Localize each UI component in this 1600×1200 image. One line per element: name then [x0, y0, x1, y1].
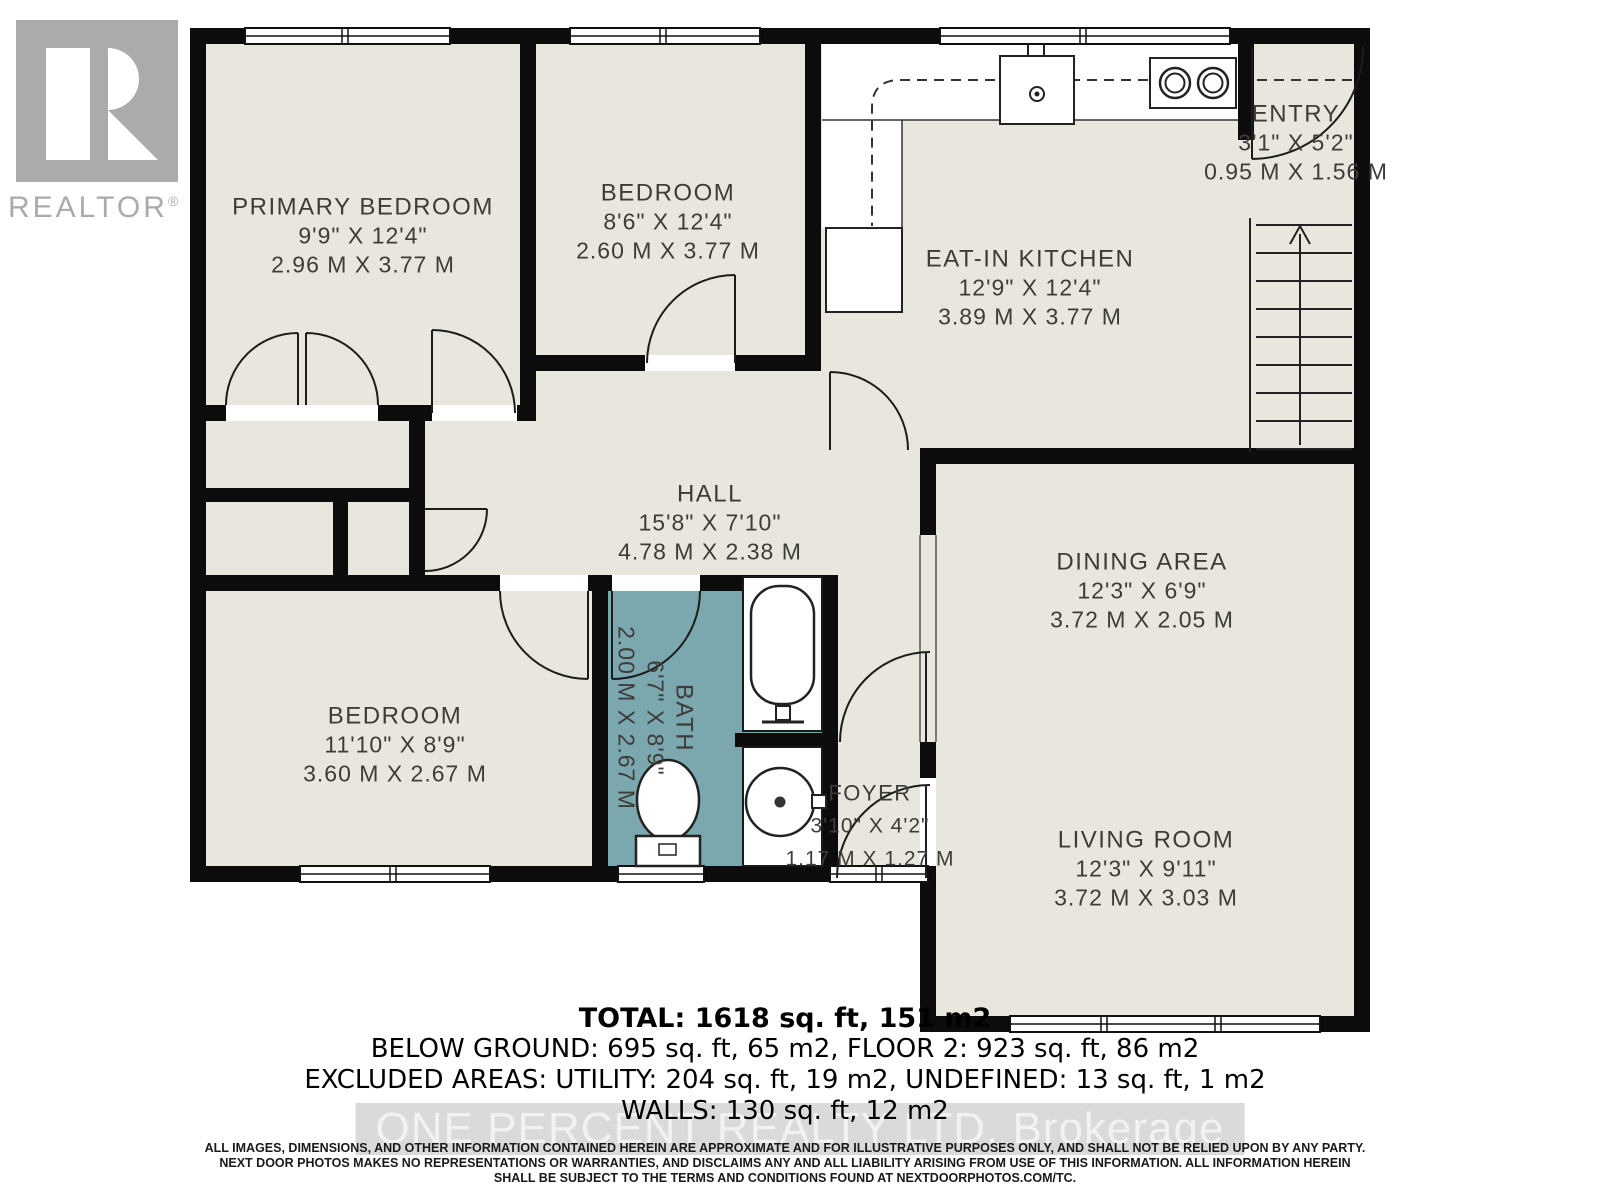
room-label-dining-area: DINING AREA 12'3" X 6'9" 3.72 M X 2.05 M — [1050, 548, 1234, 635]
disclaimer: ALL IMAGES, DIMENSIONS, AND OTHER INFORM… — [0, 1141, 1570, 1186]
room-dim-imperial: 12'9" X 12'4" — [926, 274, 1135, 303]
realtor-r-icon — [8, 10, 183, 182]
room-dim-metric: 4.78 M X 2.38 M — [618, 538, 802, 567]
room-name: DINING AREA — [1050, 548, 1234, 577]
area-summary: TOTAL: 1618 sq. ft, 151 m2 BELOW GROUND:… — [0, 1003, 1570, 1127]
room-name: ENTRY — [1204, 100, 1388, 129]
room-name: EAT-IN KITCHEN — [926, 245, 1135, 274]
window-bedroom-lower — [300, 866, 490, 882]
room-label-foyer: FOYER 3'10" X 4'2" 1.17 M X 1.27 M — [785, 777, 954, 876]
room-name: LIVING ROOM — [1054, 826, 1238, 855]
room-name: HALL — [618, 480, 802, 509]
window-kitchen — [940, 28, 1230, 44]
room-dim-imperial: 15'8" X 7'10" — [618, 509, 802, 538]
room-label-bedroom-lower: BEDROOM 11'10" X 8'9" 3.60 M X 2.67 M — [303, 702, 487, 789]
fridge — [826, 228, 902, 312]
room-dim-imperial: 3'10" X 4'2" — [785, 810, 954, 843]
disclaimer-line-1: ALL IMAGES, DIMENSIONS, AND OTHER INFORM… — [0, 1141, 1570, 1156]
floor-plan-page: { "logo": { "brand": "REALTOR", "registe… — [0, 0, 1600, 1200]
excluded-area-text: EXCLUDED AREAS: UTILITY: 204 sq. ft, 19 … — [0, 1065, 1570, 1096]
room-label-primary-bedroom: PRIMARY BEDROOM 9'9" X 12'4" 2.96 M X 3.… — [232, 193, 494, 280]
room-label-bath: BATH 6'7" X 8'9" 2.00 M X 2.67 M — [612, 626, 699, 810]
room-label-living-room: LIVING ROOM 12'3" X 9'11" 3.72 M X 3.03 … — [1054, 826, 1238, 913]
bath-sink-drain — [775, 797, 786, 808]
room-dim-metric: 3.72 M X 2.05 M — [1050, 606, 1234, 635]
room-name: BATH — [670, 626, 699, 810]
realtor-logo-text: REALTOR® — [8, 191, 178, 225]
room-label-eat-in-kitchen: EAT-IN KITCHEN 12'9" X 12'4" 3.89 M X 3.… — [926, 245, 1135, 332]
disclaimer-line-3: SHALL BE SUBJECT TO THE TERMS AND CONDIT… — [0, 1171, 1570, 1186]
bathtub-faucet-icon — [776, 706, 790, 720]
toilet-flush-button — [659, 844, 676, 855]
room-name: BEDROOM — [303, 702, 487, 731]
walls-area-text: WALLS: 130 sq. ft, 12 m2 — [0, 1096, 1570, 1127]
window-bath — [618, 866, 704, 882]
room-dim-imperial: 9'9" X 12'4" — [232, 222, 494, 251]
below-ground-area-text: BELOW GROUND: 695 sq. ft, 65 m2, FLOOR 2… — [0, 1034, 1570, 1065]
room-label-entry: ENTRY 3'1" X 5'2" 0.95 M X 1.56 M — [1204, 100, 1388, 187]
window-bedroom-top — [570, 28, 760, 44]
room-dim-imperial: 12'3" X 6'9" — [1050, 577, 1234, 606]
disclaimer-line-2: NEXT DOOR PHOTOS MAKES NO REPRESENTATION… — [0, 1156, 1570, 1171]
room-label-bedroom-top: BEDROOM 8'6" X 12'4" 2.60 M X 3.77 M — [576, 179, 760, 266]
room-name: FOYER — [785, 777, 954, 810]
room-dim-metric: 0.95 M X 1.56 M — [1204, 158, 1388, 187]
room-dim-imperial: 8'6" X 12'4" — [576, 208, 760, 237]
room-dim-imperial: 3'1" X 5'2" — [1204, 129, 1388, 158]
room-dim-imperial: 6'7" X 8'9" — [641, 626, 670, 810]
total-area-text: TOTAL: 1618 sq. ft, 151 m2 — [0, 1003, 1570, 1034]
room-name: PRIMARY BEDROOM — [232, 193, 494, 222]
room-dim-metric: 2.96 M X 3.77 M — [232, 251, 494, 280]
room-dim-metric: 2.00 M X 2.67 M — [612, 626, 641, 810]
registered-trademark-icon: ® — [168, 193, 178, 209]
room-name: BEDROOM — [576, 179, 760, 208]
realtor-logo: REALTOR® — [8, 10, 183, 225]
realtor-brand-text: REALTOR — [8, 191, 168, 224]
room-dim-imperial: 12'3" X 9'11" — [1054, 855, 1238, 884]
room-dim-metric: 1.17 M X 1.27 M — [785, 843, 954, 876]
bathtub-icon — [751, 586, 814, 704]
room-label-hall: HALL 15'8" X 7'10" 4.78 M X 2.38 M — [618, 480, 802, 567]
window-primary-bedroom — [245, 28, 450, 44]
room-dim-metric: 3.60 M X 2.67 M — [303, 760, 487, 789]
room-dim-metric: 3.72 M X 3.03 M — [1054, 884, 1238, 913]
room-dim-metric: 3.89 M X 3.77 M — [926, 303, 1135, 332]
room-dim-imperial: 11'10" X 8'9" — [303, 731, 487, 760]
room-dim-metric: 2.60 M X 3.77 M — [576, 237, 760, 266]
